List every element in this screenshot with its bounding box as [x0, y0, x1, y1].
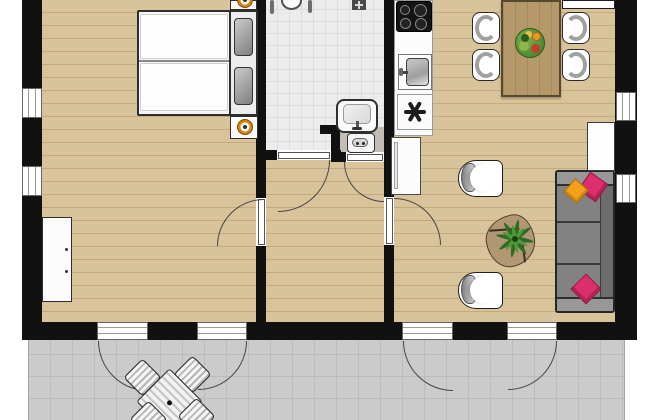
lamp-icon: [237, 119, 253, 135]
bed-split-line: [139, 60, 229, 62]
left-window-top: [22, 88, 42, 118]
fruit-bowl: [515, 28, 545, 58]
right-outer-wall: [615, 0, 637, 340]
knob-icon: [362, 142, 365, 145]
bed-pillow: [234, 67, 253, 105]
plant-center: [512, 236, 518, 242]
wardrobe: [42, 217, 72, 302]
burner-icon: [415, 18, 427, 30]
armchair: [458, 160, 503, 197]
terrace-door-threshold-2: [197, 322, 247, 340]
burner-icon: [400, 5, 410, 15]
right-window-top: [616, 92, 636, 121]
sofa-backrest: [600, 186, 613, 297]
sideboard-strip: [562, 0, 615, 9]
bed-pillow: [234, 18, 253, 56]
wardrobe-handle: [65, 270, 68, 273]
floor-plan: [0, 0, 650, 420]
tap-handle: [399, 68, 403, 76]
toilet-rail: [308, 0, 312, 13]
dining-chair: [562, 49, 590, 81]
wardrobe-handle: [65, 248, 68, 251]
gas-hob: [396, 1, 432, 32]
terrace-door-threshold-1: [97, 322, 148, 340]
fruit: [532, 32, 541, 41]
fruit: [531, 44, 540, 53]
double-bed: [137, 10, 258, 116]
chair-backrest: [565, 52, 587, 78]
armchair: [458, 272, 503, 309]
chair-backrest: [565, 15, 587, 41]
tap-handle: [352, 127, 362, 130]
washbasin: [336, 99, 378, 133]
kitchen-sink-basin: [406, 58, 429, 86]
chair-backrest: [475, 15, 497, 41]
kitchen-sink: [398, 54, 432, 90]
sofa-seat-line: [557, 221, 600, 223]
duvet-left: [140, 14, 228, 59]
washing-machine: [347, 133, 375, 153]
bed-headboard: [229, 12, 256, 114]
living-door-leaf: [386, 198, 393, 244]
fruit: [519, 41, 529, 51]
dining-chair: [562, 12, 590, 44]
burner-icon: [414, 4, 427, 17]
duvet-right: [140, 63, 228, 111]
fridge-cabinet: [391, 137, 421, 195]
terrace-door-threshold-4: [507, 322, 557, 340]
dining-chair: [472, 12, 500, 44]
armchair-seat: [470, 276, 498, 304]
armchair-seat: [470, 164, 498, 192]
niche-door-leaf: [347, 154, 383, 161]
appliance-asterisk: [397, 94, 433, 130]
washing-machine-panel: [352, 138, 368, 147]
chair-backrest: [475, 52, 497, 78]
plant-icon: [494, 220, 536, 258]
toilet-rail: [270, 0, 274, 14]
burner-icon: [400, 18, 411, 29]
table-center-dot: [166, 399, 173, 406]
knob-icon: [356, 142, 359, 145]
left-window-bottom: [22, 166, 42, 196]
dining-chair: [472, 49, 500, 81]
vent-icon: [352, 0, 366, 10]
side-table: [587, 122, 615, 171]
fridge-handle: [394, 142, 398, 189]
terrace-door-threshold-3: [402, 322, 453, 340]
fruit: [521, 34, 529, 42]
right-window-bottom: [616, 174, 636, 203]
bathroom-door-leaf: [278, 152, 330, 159]
sofa-seat-line: [557, 263, 600, 265]
vent-star: [358, 1, 360, 9]
